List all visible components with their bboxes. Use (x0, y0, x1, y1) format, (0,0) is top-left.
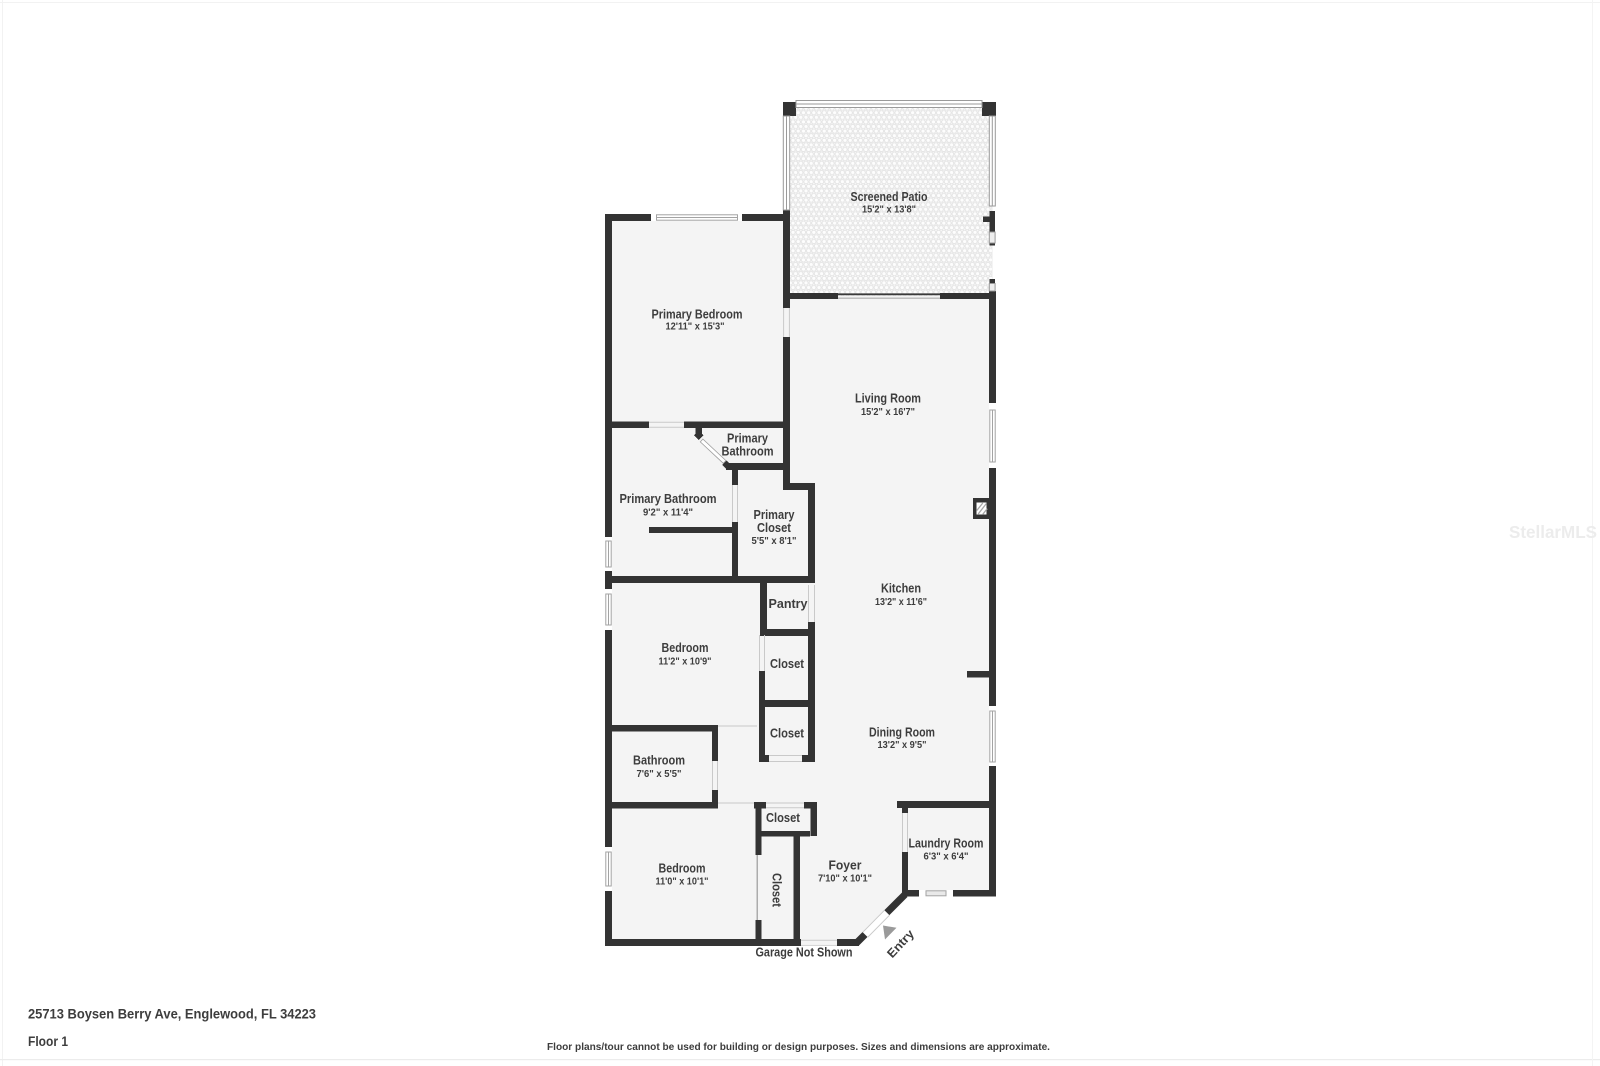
svg-text:Laundry Room: Laundry Room (909, 836, 984, 851)
svg-text:Closet: Closet (757, 520, 792, 535)
svg-text:Pantry: Pantry (769, 596, 809, 611)
svg-text:Bedroom: Bedroom (662, 640, 709, 655)
svg-text:Closet: Closet (770, 873, 785, 908)
svg-text:7'6" x 5'5": 7'6" x 5'5" (637, 769, 682, 780)
svg-text:13'2" x 11'6": 13'2" x 11'6" (875, 597, 927, 608)
svg-text:Primary Bedroom: Primary Bedroom (652, 307, 743, 322)
svg-text:Garage Not Shown: Garage Not Shown (756, 945, 853, 960)
svg-text:Bathroom: Bathroom (633, 753, 685, 768)
svg-text:Closet: Closet (770, 656, 805, 671)
svg-text:Floor plans/tour cannot be use: Floor plans/tour cannot be used for buil… (547, 1041, 1050, 1053)
svg-text:Bathroom: Bathroom (722, 444, 774, 459)
svg-text:7'10" x 10'1": 7'10" x 10'1" (818, 874, 872, 885)
svg-text:11'0" x 10'1": 11'0" x 10'1" (656, 877, 709, 888)
svg-text:15'2" x 13'8": 15'2" x 13'8" (862, 205, 916, 216)
svg-text:Closet: Closet (770, 725, 805, 740)
svg-text:Bedroom: Bedroom (659, 860, 706, 875)
svg-text:Dining Room: Dining Room (869, 724, 935, 739)
svg-text:9'2" x 11'4": 9'2" x 11'4" (643, 508, 693, 519)
svg-text:25713 Boysen Berry Ave, Englew: 25713 Boysen Berry Ave, Englewood, FL 34… (28, 1006, 316, 1022)
svg-text:5'5" x 8'1": 5'5" x 8'1" (752, 536, 797, 547)
svg-text:6'3" x 6'4": 6'3" x 6'4" (924, 852, 969, 863)
svg-text:15'2" x 16'7": 15'2" x 16'7" (861, 407, 915, 418)
svg-text:Foyer: Foyer (829, 857, 862, 872)
svg-text:11'2" x 10'9": 11'2" x 10'9" (659, 657, 712, 668)
svg-text:Kitchen: Kitchen (881, 580, 921, 595)
svg-text:StellarMLS: StellarMLS (1509, 522, 1597, 542)
svg-text:Living Room: Living Room (855, 391, 921, 406)
svg-text:13'2" x 9'5": 13'2" x 9'5" (878, 740, 927, 751)
svg-text:12'11" x 15'3": 12'11" x 15'3" (666, 322, 725, 333)
svg-text:Screened Patio: Screened Patio (851, 189, 928, 204)
svg-text:Floor 1: Floor 1 (28, 1033, 68, 1049)
svg-text:Primary Bathroom: Primary Bathroom (620, 491, 717, 506)
svg-text:Closet: Closet (766, 810, 801, 825)
